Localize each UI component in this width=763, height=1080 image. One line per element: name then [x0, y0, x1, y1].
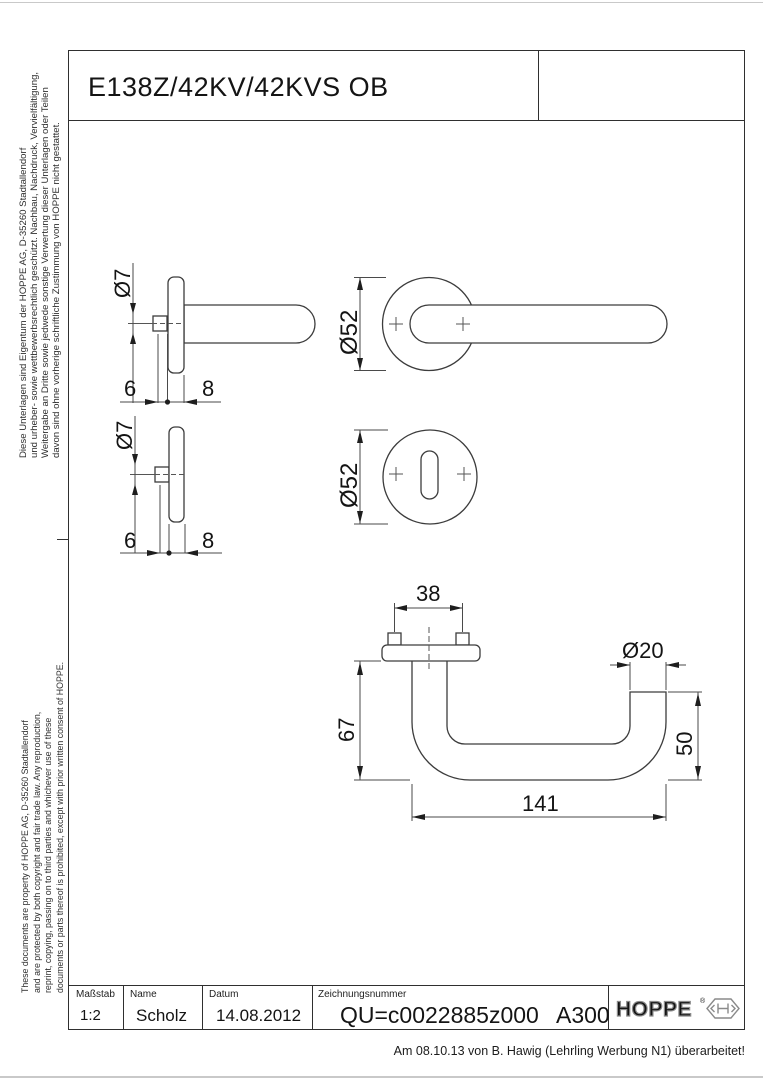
date-label: Datum [209, 989, 238, 1000]
technical-views: Ø7 6 8 Ø7 6 8 Ø52 Ø52 38 Ø20 67 50 141 [0, 0, 763, 1080]
hoppe-logo-registered: ® [700, 997, 706, 1005]
hoppe-logo-text: HOPPE [616, 998, 692, 1021]
name-value: Scholz [136, 1006, 187, 1026]
dim-height-67: 67 [334, 718, 359, 742]
dim-offset-8-a: 8 [202, 376, 214, 401]
view-front-lever [383, 278, 668, 371]
hoppe-logo-graphic: HOPPE ® [614, 993, 742, 1023]
view-side-lever [153, 277, 315, 373]
hoppe-logo: HOPPE ® [614, 993, 742, 1023]
dim-pin-diameter-b: Ø7 [112, 421, 137, 450]
drawing-number-label: Zeichnungsnummer [318, 989, 406, 1000]
dimension-arrows [130, 278, 701, 821]
dim-projection-50: 50 [672, 732, 697, 756]
dim-grip-diameter: Ø20 [622, 638, 664, 663]
dimension-labels: Ø7 6 8 Ø7 6 8 Ø52 Ø52 38 Ø20 67 50 141 [110, 269, 697, 816]
scale-value: 1:2 [80, 1007, 101, 1024]
dim-offset-6-b: 6 [124, 528, 136, 553]
scale-label: Maßstab [76, 989, 115, 1000]
name-label: Name [130, 989, 157, 1000]
drawing-sheet: Diese Unterlagen sind Eigentum der HOPPE… [0, 0, 763, 1080]
dim-offset-8-b: 8 [202, 528, 214, 553]
dim-length-141: 141 [522, 791, 559, 816]
dim-screw-distance: 38 [416, 581, 440, 606]
revision-note: Am 08.10.13 von B. Hawig (Lehrling Werbu… [394, 1044, 745, 1058]
hoppe-hexagon-icon [707, 999, 739, 1018]
dim-rose-diameter-d: Ø52 [336, 463, 363, 508]
dim-pin-diameter-a: Ø7 [110, 269, 135, 298]
dim-rose-diameter-c: Ø52 [336, 310, 363, 355]
date-value: 14.08.2012 [216, 1006, 301, 1026]
revision-code: A300 [556, 1002, 610, 1029]
drawing-number-value: QU=c0022885z000 [340, 1002, 539, 1029]
dim-offset-6-a: 6 [124, 376, 136, 401]
view-front-keyhole [383, 430, 477, 524]
